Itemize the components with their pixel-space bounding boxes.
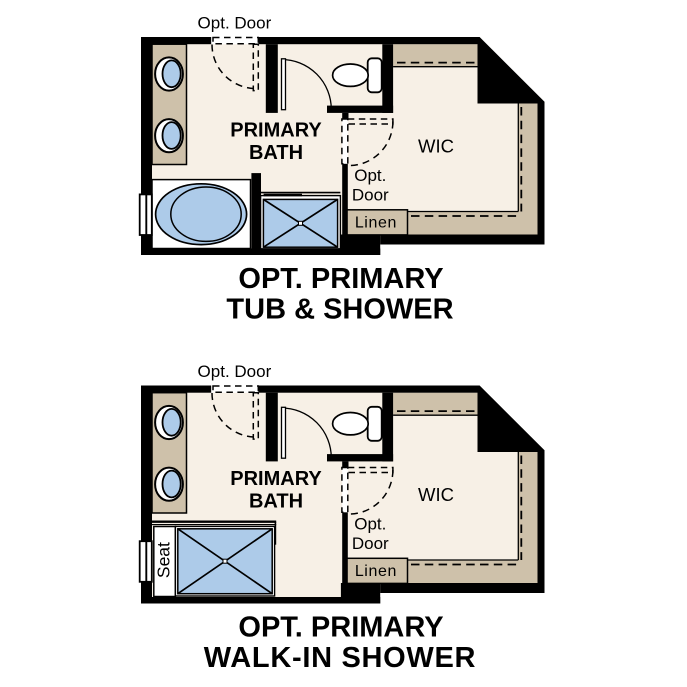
svg-text:TUB & SHOWER: TUB & SHOWER xyxy=(226,293,453,325)
svg-text:Door: Door xyxy=(352,185,389,204)
svg-text:PRIMARY: PRIMARY xyxy=(230,468,322,490)
svg-text:Seat: Seat xyxy=(153,542,173,578)
svg-text:BATH: BATH xyxy=(249,491,303,513)
svg-text:Opt. Door: Opt. Door xyxy=(198,362,272,381)
svg-text:Linen: Linen xyxy=(355,214,397,231)
svg-text:Door: Door xyxy=(352,534,389,553)
svg-text:Opt.: Opt. xyxy=(354,515,386,534)
svg-text:Opt. Door: Opt. Door xyxy=(198,13,272,32)
svg-text:WIC: WIC xyxy=(418,484,454,505)
svg-text:Opt.: Opt. xyxy=(354,166,386,185)
svg-text:WALK-IN SHOWER: WALK-IN SHOWER xyxy=(204,642,476,674)
svg-text:PRIMARY: PRIMARY xyxy=(230,120,322,142)
svg-text:WIC: WIC xyxy=(418,136,454,157)
svg-text:Linen: Linen xyxy=(355,563,397,580)
svg-text:OPT. PRIMARY: OPT. PRIMARY xyxy=(238,263,443,295)
svg-text:OPT. PRIMARY: OPT. PRIMARY xyxy=(238,611,443,643)
svg-text:BATH: BATH xyxy=(249,142,303,164)
